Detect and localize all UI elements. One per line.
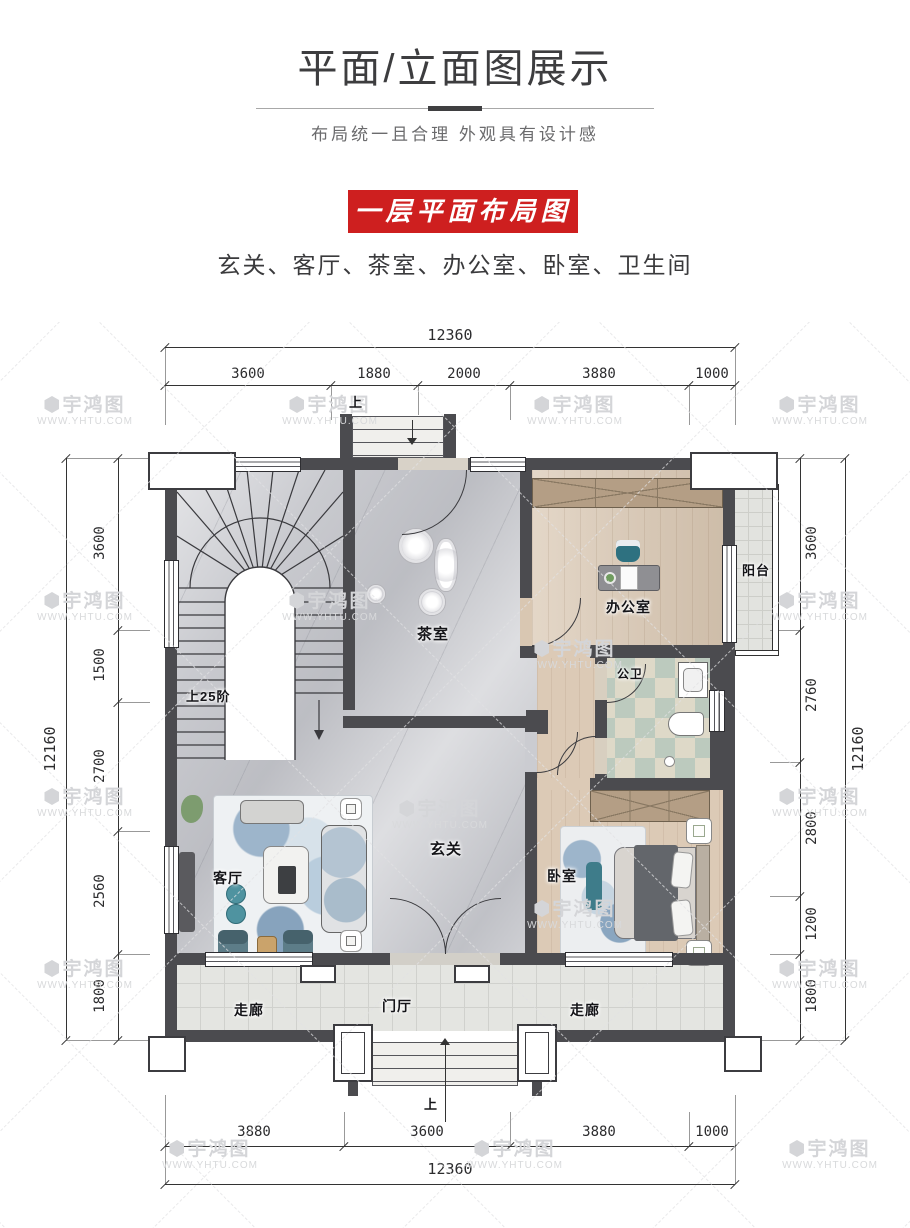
pilaster — [148, 452, 236, 490]
label-corridor-right: 走廊 — [570, 1000, 600, 1020]
front-step-arrow — [445, 1044, 446, 1122]
wall-tea-foyer — [343, 716, 540, 728]
watermark-logo-icon — [169, 1140, 184, 1157]
pouf — [226, 904, 246, 924]
opening-bath-top — [595, 664, 607, 700]
dim-line-left-total — [66, 458, 67, 1040]
watermark-logo-icon — [534, 396, 549, 413]
desk-paper — [620, 566, 638, 590]
porch-column — [517, 1024, 557, 1082]
dim-right-seg: 1200 — [804, 894, 820, 954]
balcony-slider — [722, 545, 737, 643]
opening-bedroom-corridor — [537, 778, 590, 790]
watermark: 宇鸿图WWW.YHTU.COM — [25, 592, 145, 624]
sofa — [321, 825, 367, 933]
watermark-logo-icon — [44, 960, 59, 977]
watermark: 宇鸿图WWW.YHTU.COM — [760, 396, 880, 428]
bed-bench — [586, 862, 602, 910]
dim-left-total: 12160 — [41, 719, 59, 779]
window — [164, 560, 179, 648]
dim-top-seg: 2000 — [434, 366, 494, 382]
rear-steps — [352, 416, 444, 458]
porch-pier — [300, 965, 336, 983]
balcony-rail-right — [772, 484, 779, 656]
watermark-logo-icon — [44, 592, 59, 609]
pilaster — [148, 1036, 186, 1072]
window — [164, 846, 179, 934]
headboard — [696, 845, 710, 941]
dim-top-total: 12360 — [420, 326, 480, 344]
title-divider-accent — [428, 106, 482, 111]
wall-office-left — [520, 458, 532, 598]
floor-drain — [664, 756, 675, 767]
dim-line-right-total — [845, 458, 846, 1040]
bed-blanket — [634, 845, 678, 941]
opening-front-door — [390, 953, 500, 965]
wall-top-porch-right — [444, 414, 456, 460]
desk-plant — [604, 572, 616, 584]
watermark-logo-icon — [779, 960, 794, 977]
front-arrow-head — [440, 1038, 450, 1045]
label-office: 办公室 — [606, 597, 651, 617]
floor-porch — [177, 965, 723, 1031]
floor-banner: 一层平面布局图 — [348, 190, 578, 233]
room-list: 玄关、客厅、茶室、办公室、卧室、卫生间 — [0, 246, 910, 280]
bed-pillow — [670, 851, 694, 889]
nightstand — [686, 818, 712, 844]
watermark-logo-icon — [289, 396, 304, 413]
label-living-room: 客厅 — [213, 868, 243, 888]
floor-ornament — [418, 588, 446, 616]
coffee-table-tray — [278, 866, 296, 894]
watermark-logo-icon — [44, 788, 59, 805]
toilet — [668, 712, 704, 736]
label-foyer: 玄关 — [430, 838, 462, 859]
window — [470, 457, 526, 472]
label-bedroom: 卧室 — [547, 866, 577, 886]
dim-bottom-seg: 3880 — [569, 1124, 629, 1140]
label-corridor-left: 走廊 — [234, 1000, 264, 1020]
corner-table — [340, 930, 362, 952]
dim-right-seg: 3600 — [804, 513, 820, 573]
dim-right-seg: 1800 — [804, 966, 820, 1026]
watermark-logo-icon — [44, 396, 59, 413]
watermark: 宇鸿图WWW.YHTU.COM — [770, 1140, 890, 1172]
pilaster — [690, 452, 778, 490]
dim-left-seg: 3600 — [92, 513, 108, 573]
watermark-logo-icon — [789, 1140, 804, 1157]
wall-porch-front-left — [177, 1030, 333, 1042]
dim-top-seg: 3880 — [569, 366, 629, 382]
dim-bottom-total: 12360 — [420, 1160, 480, 1178]
watermark: 宇鸿图WWW.YHTU.COM — [760, 788, 880, 820]
tv-console — [179, 852, 195, 932]
dim-top-seg: 1880 — [344, 366, 404, 382]
dim-right-seg: 2760 — [804, 665, 820, 725]
label-tea-room: 茶室 — [417, 623, 449, 644]
watermark: 宇鸿图WWW.YHTU.COM — [25, 960, 145, 992]
page-subtitle: 布局统一且合理 外观具有设计感 — [0, 120, 910, 145]
rear-step-arrow — [412, 420, 413, 438]
watermark-logo-icon — [779, 396, 794, 413]
dim-left-seg: 1800 — [92, 966, 108, 1026]
column-foot — [348, 1082, 358, 1096]
wall-stair — [343, 458, 355, 710]
dim-line-bottom-segments — [165, 1146, 735, 1147]
dim-left-seg: 1500 — [92, 635, 108, 695]
page-title: 平面/立面图展示 — [0, 36, 910, 94]
watermark: 宇鸿图WWW.YHTU.COM — [25, 396, 145, 428]
opening-hall-top — [537, 645, 590, 658]
label-up-rear: 上 — [349, 392, 363, 411]
rear-arrow-head — [407, 438, 417, 445]
column-foot — [532, 1082, 542, 1096]
window — [565, 952, 673, 967]
wall-porch-front-right — [557, 1030, 723, 1042]
watermark: 宇鸿图WWW.YHTU.COM — [515, 396, 635, 428]
watermark-logo-icon — [474, 1140, 489, 1157]
watermark: 宇鸿图WWW.YHTU.COM — [25, 788, 145, 820]
floor-ornament — [434, 538, 458, 592]
dim-top-seg: 3600 — [218, 366, 278, 382]
opening-hall-door — [525, 732, 537, 772]
opening-office-door — [520, 598, 532, 646]
dim-line-top-segments — [165, 385, 735, 386]
opening-top-door — [398, 458, 468, 470]
watermark: 宇鸿图WWW.YHTU.COM — [150, 1140, 270, 1172]
dim-left-seg: 2700 — [92, 736, 108, 796]
staircase — [177, 470, 343, 760]
watermark: 宇鸿图WWW.YHTU.COM — [760, 960, 880, 992]
watermark-logo-icon — [779, 592, 794, 609]
dim-left-seg: 2560 — [92, 861, 108, 921]
dim-top-seg: 1000 — [682, 366, 742, 382]
bath-sink — [683, 668, 703, 692]
bath-window — [709, 690, 725, 732]
dim-bottom-seg: 3600 — [397, 1124, 457, 1140]
label-up-front: 上 — [424, 1094, 438, 1113]
corner-table — [340, 798, 362, 820]
dim-bottom-seg: 3880 — [224, 1124, 284, 1140]
dim-bottom-seg: 1000 — [682, 1124, 742, 1140]
label-balcony: 阳台 — [742, 560, 770, 579]
label-stairs: 上25阶 — [186, 686, 230, 705]
wall-top-porch-left — [340, 414, 352, 460]
porch-column — [333, 1024, 373, 1082]
watermark-logo-icon — [779, 788, 794, 805]
pilaster — [724, 1036, 762, 1072]
label-entrance-hall: 门厅 — [382, 996, 412, 1016]
bench-sofa — [240, 800, 304, 824]
dim-right-total: 12160 — [849, 719, 867, 779]
balcony-rail-bottom — [735, 650, 779, 656]
dim-right-seg: 2800 — [804, 798, 820, 858]
floor-ornament — [366, 584, 386, 604]
dim-line-top-total — [165, 347, 735, 348]
bed-pillow — [670, 899, 694, 937]
dim-line-bottom-total — [165, 1184, 735, 1185]
label-bathroom: 公卫 — [617, 665, 643, 682]
porch-pier — [454, 965, 490, 983]
opening-bath-bottom — [595, 738, 607, 774]
office-chair — [616, 540, 640, 562]
window — [205, 952, 313, 967]
floor-plan-sheet: 平面/立面图展示 布局统一且合理 外观具有设计感 一层平面布局图 玄关、客厅、茶… — [0, 0, 910, 1228]
